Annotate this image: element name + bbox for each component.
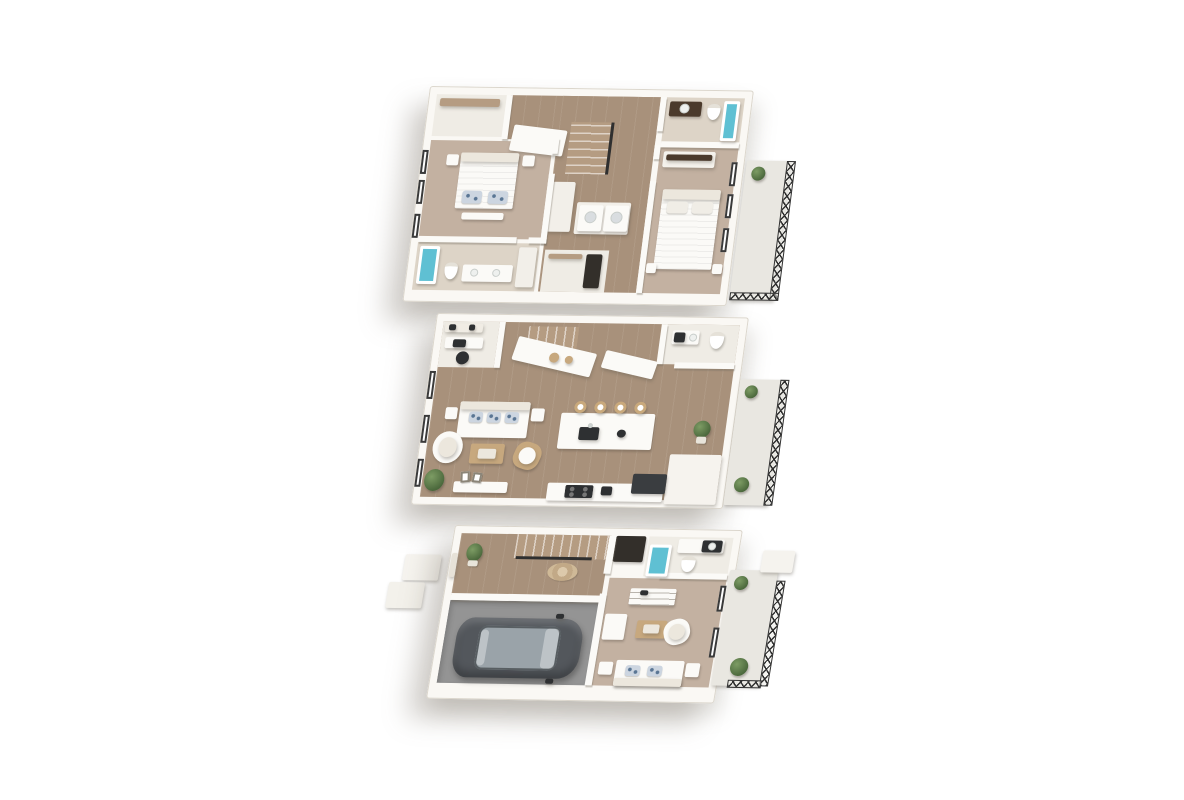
bed-bench	[461, 212, 504, 220]
side-table	[530, 408, 545, 421]
pillow	[691, 202, 714, 214]
shelf-decor	[469, 324, 476, 330]
cooktop	[564, 485, 594, 498]
plant-pot	[467, 560, 478, 566]
pillow	[468, 411, 484, 422]
bed-headboard	[460, 152, 519, 162]
wall	[674, 362, 735, 369]
stairs-upper	[565, 122, 612, 174]
wall	[528, 237, 547, 243]
nightstand	[645, 263, 656, 273]
cabinet	[601, 614, 627, 640]
main-floor-plan	[411, 313, 749, 509]
side-mirror	[556, 614, 565, 619]
upper-floor-unit	[402, 86, 754, 306]
ground-floor-plan	[426, 525, 743, 704]
table-decor	[642, 624, 659, 633]
pillow	[504, 412, 520, 423]
nightstand	[522, 155, 535, 166]
refrigerator	[631, 474, 668, 494]
pillow	[487, 191, 509, 204]
kitchen-island	[557, 413, 656, 450]
powder-counter	[673, 332, 685, 342]
island-sink	[578, 427, 600, 440]
balcony-railing	[729, 292, 779, 301]
side-table	[684, 663, 700, 677]
pillow	[666, 201, 689, 213]
dresser-decor	[640, 590, 649, 595]
small-appliance	[600, 486, 612, 495]
closet-rod	[666, 154, 713, 161]
sofa-back	[613, 678, 682, 687]
upper-floor-plan	[402, 86, 754, 306]
pillow	[461, 190, 483, 203]
side-mirror	[545, 679, 554, 684]
pillow	[646, 665, 663, 676]
pillow	[624, 665, 641, 676]
shelf-decor	[449, 324, 457, 330]
closet-rod	[439, 98, 500, 107]
double-vanity	[461, 264, 513, 282]
nightstand	[446, 154, 459, 165]
art-frame	[460, 471, 469, 483]
nightstand	[711, 264, 722, 274]
plant-pot	[696, 437, 707, 444]
side-table	[445, 407, 459, 419]
entry-step	[385, 582, 425, 609]
sofa-back	[460, 401, 531, 410]
side-table	[597, 662, 613, 675]
wall	[659, 573, 728, 580]
bed-headboard	[662, 189, 721, 200]
patio-railing	[727, 680, 762, 689]
laptop	[452, 339, 466, 347]
floor-plan-canvas	[0, 0, 1184, 800]
closet-shelf	[548, 254, 583, 259]
kitchen-corner-wall	[663, 454, 722, 505]
under-stair-closet	[612, 536, 646, 562]
dresser	[628, 588, 677, 606]
table-decor	[477, 449, 496, 459]
main-floor-unit	[411, 313, 749, 509]
wall	[661, 141, 740, 148]
entry-step	[402, 554, 442, 581]
ground-floor-unit	[426, 525, 743, 704]
pillow	[486, 412, 502, 423]
patio-wall-block	[760, 550, 796, 572]
